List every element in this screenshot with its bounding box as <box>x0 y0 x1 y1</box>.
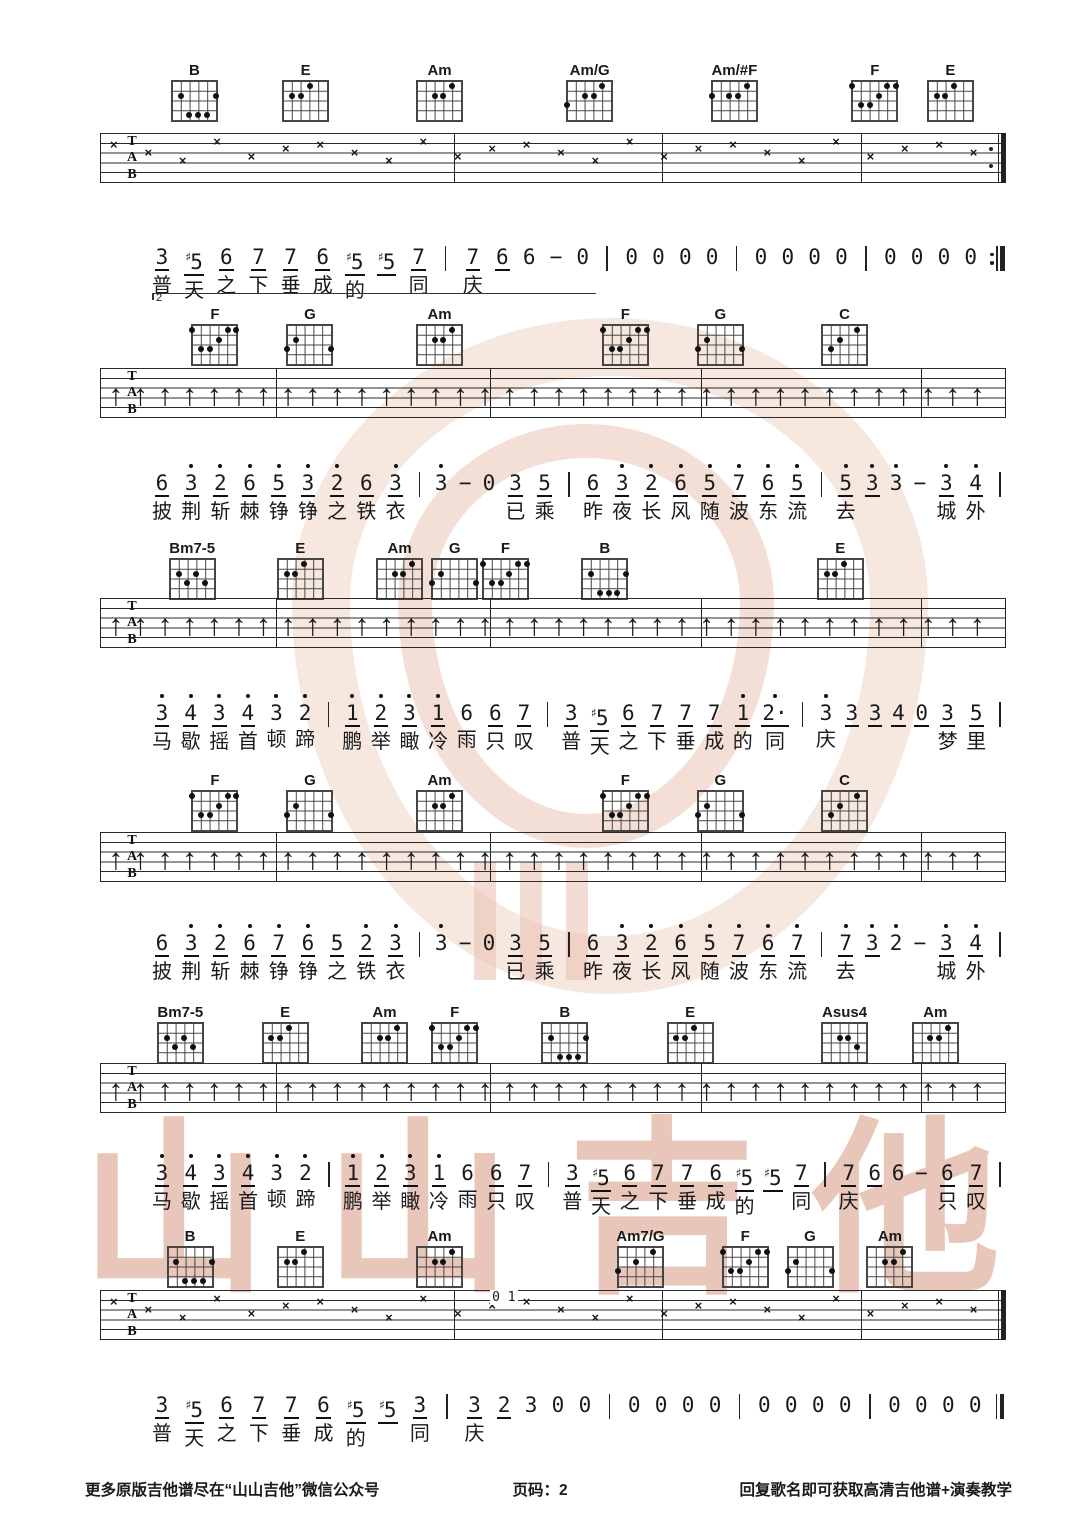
chord-finger-dot <box>328 346 334 352</box>
chord-grid <box>667 1022 714 1064</box>
strum-arrow: ↑ <box>453 606 468 646</box>
jianpu-note: 3 <box>939 922 954 957</box>
octave-dot <box>364 924 368 928</box>
chord-diagram: E <box>655 1004 725 1064</box>
chord-finger-dot <box>429 1025 435 1031</box>
jianpu-note: 2 <box>374 692 389 727</box>
jianpu-token: 1的 <box>733 692 753 754</box>
lyric-char: 棘 <box>240 960 260 984</box>
jianpu-token: 1鹏 <box>343 1152 363 1214</box>
jianpu-token <box>990 236 1005 271</box>
sharp-sign: ♯ <box>764 1166 769 1180</box>
chord-name: Am/G <box>555 62 625 79</box>
jianpu-token: ♯5 <box>763 1152 782 1192</box>
mute-x-mark: × <box>626 1292 634 1305</box>
jianpu-note: 6 <box>155 462 170 497</box>
strum-arrow: ↑ <box>699 1071 714 1111</box>
jianpu-note: 3 <box>212 692 227 727</box>
strum-arrow: ↑ <box>921 606 936 646</box>
jianpu-token: 7下 <box>648 1152 668 1214</box>
chord-finger-dot <box>695 346 701 352</box>
mute-x-mark: × <box>763 146 771 159</box>
lyric-char: 瞰 <box>399 730 419 754</box>
chord-grid <box>191 790 238 832</box>
jianpu-note: 3 <box>865 922 880 957</box>
strum-arrow: ↑ <box>527 376 542 416</box>
chord-finger-dot <box>202 580 208 586</box>
tab-staff: T A B××××××××××××××××××××××××××0 1 <box>100 1290 1006 1340</box>
octave-dot <box>844 924 848 928</box>
strum-arrow: ↑ <box>601 606 616 646</box>
jianpu-token: 6只 <box>486 1152 506 1214</box>
jianpu-token: 3马 <box>152 692 172 754</box>
strum-arrow: ↑ <box>133 376 148 416</box>
jianpu-token: 5随 <box>700 462 720 524</box>
jianpu-note: 0 <box>887 1384 902 1417</box>
octave-dot <box>248 924 252 928</box>
chord-grid <box>361 1022 408 1064</box>
jianpu-note: − <box>458 922 473 955</box>
chord-grid <box>482 558 529 600</box>
strum-arrow: ↑ <box>822 1071 837 1111</box>
tab-staff: T A B↑↑↑↑↑↑↑↑↑↑↑↑↑↑↑↑↑↑↑↑↑↑↑↑↑↑↑↑↑↑↑↑↑↑↑… <box>100 832 1006 882</box>
jianpu-note: 3 <box>615 922 630 957</box>
sharp-sign: ♯ <box>346 250 351 264</box>
jianpu-note: 0 <box>578 1384 593 1417</box>
octave-dot <box>436 694 440 698</box>
chord-name: B <box>570 540 640 557</box>
jianpu-note: 3 <box>565 1152 580 1187</box>
lyric-char: 天 <box>591 1195 611 1219</box>
chord-diagram: Am <box>405 1228 475 1288</box>
jianpu-note: 7 <box>271 922 286 957</box>
lyric-char: 东 <box>758 960 778 984</box>
strum-arrow: ↑ <box>404 840 419 880</box>
jianpu-note: ♯5 <box>590 692 609 732</box>
jianpu-note: 7 <box>251 236 266 271</box>
lyric-char: 铁 <box>356 960 376 984</box>
jianpu-note: 3 <box>508 462 523 497</box>
strum-arrow: ↑ <box>330 1071 345 1111</box>
strum-arrow: ↑ <box>896 606 911 646</box>
chord-finger-dot <box>728 1268 734 1274</box>
chord-grid <box>282 80 329 122</box>
strum-arrow: ↑ <box>157 376 172 416</box>
jianpu-token: 3顿 <box>266 692 286 752</box>
jianpu-note: 0 <box>705 236 720 269</box>
strum-arrow: ↑ <box>896 376 911 416</box>
jianpu-token: 0 <box>627 1384 642 1417</box>
jianpu-note: 0 <box>482 922 497 955</box>
strum-arrow: ↑ <box>847 606 862 646</box>
lyric-char: 昨 <box>583 500 603 524</box>
sharp-sign: ♯ <box>591 706 596 720</box>
jianpu-note: 0 <box>551 1384 566 1417</box>
jianpu-note: 2 <box>213 922 228 957</box>
jianpu-note: 3 <box>269 692 284 725</box>
jianpu-note: 0 <box>654 1384 669 1417</box>
strum-arrow: ↑ <box>797 1071 812 1111</box>
strum-arrow: ↑ <box>256 376 271 416</box>
jianpu-token: 3 <box>865 922 880 957</box>
jianpu-token <box>442 1384 452 1419</box>
jianpu-note: 3 <box>155 692 170 727</box>
chord-grid <box>602 790 649 832</box>
chord-name: F <box>470 540 540 557</box>
jianpu-note: 7 <box>732 922 747 957</box>
lyric-char: 长 <box>641 960 661 984</box>
jianpu-token: 5乘 <box>535 922 555 984</box>
jianpu-token: 3荆 <box>181 462 201 524</box>
measure-barline <box>276 832 277 882</box>
lyric-char: 衣 <box>386 500 406 524</box>
chord-finger-dot <box>489 580 495 586</box>
chord-finger-dot <box>682 1035 688 1041</box>
chord-diagram: C <box>810 306 880 366</box>
chord-finger-dot <box>575 1054 581 1060</box>
chord-name: Am <box>855 1228 925 1245</box>
strum-arrow: ↑ <box>305 840 320 880</box>
mute-x-mark: × <box>213 1292 221 1305</box>
octave-dot <box>394 464 398 468</box>
jianpu-barline <box>609 1394 611 1419</box>
jianpu-note: 0 <box>681 1384 696 1417</box>
lyric-char: 举 <box>372 1190 392 1214</box>
jianpu-token: − <box>913 462 928 495</box>
jianpu-note: 4 <box>183 1152 198 1187</box>
chord-finger-dot <box>400 571 406 577</box>
strum-arrow: ↑ <box>871 1071 886 1111</box>
strum-arrow: ↑ <box>231 606 246 646</box>
jianpu-note: 0 <box>784 1384 799 1417</box>
repeat-dots <box>990 253 994 265</box>
jianpu-token <box>995 1384 1005 1419</box>
jianpu-token: 2长 <box>641 922 661 984</box>
chord-finger-dot <box>464 1025 470 1031</box>
jianpu-note: 2 <box>359 922 374 957</box>
chord-finger-dot <box>432 337 438 343</box>
jianpu-note: 4 <box>241 1152 256 1187</box>
jianpu-token <box>602 236 612 271</box>
lyric-char: 瞰 <box>400 1190 420 1214</box>
chord-finger-dot <box>473 1025 479 1031</box>
octave-dot <box>620 464 624 468</box>
chord-finger-dot <box>293 803 299 809</box>
jianpu-token: 6 <box>891 1152 906 1185</box>
lyric-char: 鹏 <box>343 1190 363 1214</box>
lyric-char: 顿 <box>267 1188 287 1212</box>
jianpu-token: − <box>458 922 473 955</box>
jianpu-note: 2 <box>374 1152 389 1187</box>
jianpu-token: 1冷 <box>429 1152 449 1214</box>
end-barline <box>1005 832 1007 882</box>
octave-dot <box>439 464 443 468</box>
jianpu-note: 7 <box>411 236 426 271</box>
octave-dot <box>649 464 653 468</box>
jianpu-token: 2举 <box>371 692 391 754</box>
jianpu-token: 3普 <box>561 692 581 754</box>
lyric-char: 夜 <box>612 960 632 984</box>
octave-dot <box>844 464 848 468</box>
strum-arrow: ↑ <box>896 840 911 880</box>
strum-arrow: ↑ <box>945 376 960 416</box>
chord-finger-dot <box>891 1259 897 1265</box>
jianpu-note: 0 <box>968 1384 983 1417</box>
jianpu-final-bar <box>996 1394 1005 1419</box>
octave-dot <box>189 694 193 698</box>
jianpu-note: 4 <box>183 692 198 727</box>
lyric-char: 庆 <box>839 1190 859 1214</box>
jianpu-token: 7去 <box>836 922 856 984</box>
mute-x-mark: × <box>179 154 187 167</box>
strum-arrow: ↑ <box>108 606 123 646</box>
jianpu-note: 7 <box>794 1152 809 1187</box>
jianpu-token: 0 <box>941 1384 956 1417</box>
lyric-char: 东 <box>758 500 778 524</box>
jianpu-line: 6披3荆2斩6棘5铮3铮2之6铁3衣3−03已5乘6昨3夜2长6风5随7波6东5… <box>152 462 1005 524</box>
jianpu-barline <box>547 702 549 727</box>
jianpu-note: 4 <box>241 692 256 727</box>
jianpu-token: 5铮 <box>269 462 289 524</box>
jianpu-note: 0 <box>914 1384 929 1417</box>
jianpu-token: 6风 <box>671 462 691 524</box>
jianpu-note: 6 <box>708 1152 723 1187</box>
lyric-char: 鹏 <box>342 730 362 754</box>
jianpu-token <box>415 922 425 957</box>
mute-x-mark: × <box>695 142 703 155</box>
end-barline <box>1005 1063 1007 1113</box>
chord-finger-dot <box>588 571 594 577</box>
chord-grid <box>821 790 868 832</box>
chord-finger-dot <box>189 327 195 333</box>
jianpu-barline <box>802 702 804 727</box>
strum-arrow: ↑ <box>674 376 689 416</box>
lyric-char: 铮 <box>269 960 289 984</box>
lyric-char: 去 <box>836 960 856 984</box>
jianpu-note: 3 <box>155 236 170 271</box>
mute-x-mark: × <box>385 1311 393 1324</box>
lyric-char: 天 <box>590 735 610 759</box>
strum-arrow: ↑ <box>108 1071 123 1111</box>
lyric-char: 雨 <box>457 728 477 752</box>
chord-name: Bm7-5 <box>157 540 227 557</box>
lyric-char: 衣 <box>386 960 406 984</box>
jianpu-note: 0 <box>807 236 822 269</box>
jianpu-token: 6雨 <box>458 1152 478 1212</box>
jianpu-token <box>324 1152 334 1187</box>
jianpu-token: 4外 <box>966 462 986 524</box>
jianpu-line: 6披3荆2斩6棘7铮6铮5之2铁3衣3−03已5乘6昨3夜2长6风5随7波6东7… <box>152 922 1005 984</box>
lyric-char: 垂 <box>677 1190 697 1214</box>
measure-barline <box>276 1063 277 1113</box>
jianpu-note: 7 <box>651 1152 666 1187</box>
measure-barline <box>861 133 862 183</box>
chord-name: F <box>590 306 660 323</box>
jianpu-token: 7庆 <box>463 236 483 298</box>
jianpu-token: − <box>913 922 928 955</box>
strum-arrow: ↑ <box>354 606 369 646</box>
lyric-char: 雨 <box>458 1188 478 1212</box>
strum-arrow: ↑ <box>748 606 763 646</box>
chord-finger-dot <box>635 327 641 333</box>
lyric-char: 的 <box>346 1427 366 1451</box>
strum-arrow: ↑ <box>404 606 419 646</box>
chord-finger-dot <box>438 571 444 577</box>
jianpu-token: 0 <box>578 1384 593 1417</box>
strum-arrow: ↑ <box>157 840 172 880</box>
chord-name: Am <box>405 62 475 79</box>
strum-arrow: ↑ <box>133 606 148 646</box>
octave-dot <box>974 464 978 468</box>
lyric-char: 斩 <box>210 500 230 524</box>
chord-finger-dot <box>927 1035 933 1041</box>
chord-diagram: Am7/G <box>605 1228 675 1288</box>
octave-dot <box>766 924 770 928</box>
strum-arrow: ↑ <box>182 606 197 646</box>
jianpu-token: 6东 <box>758 922 778 984</box>
strum-arrow: ↑ <box>502 1071 517 1111</box>
lyric-char: 冷 <box>429 1190 449 1214</box>
jianpu-token: 2斩 <box>210 462 230 524</box>
jianpu-note: ♯5 <box>735 1152 754 1192</box>
strum-arrow: ↑ <box>773 1071 788 1111</box>
jianpu-note: 3 <box>212 1152 227 1187</box>
jianpu-note: − <box>913 922 928 955</box>
strum-arrow: ↑ <box>256 840 271 880</box>
mute-x-mark: × <box>523 1295 531 1308</box>
jianpu-token: 6铮 <box>298 922 318 984</box>
tab-staff: T A B↑↑↑↑↑↑↑↑↑↑↑↑↑↑↑↑↑↑↑↑↑↑↑↑↑↑↑↑↑↑↑↑↑↑↑… <box>100 598 1006 648</box>
bar-thin <box>996 246 998 271</box>
octave-dot <box>679 464 683 468</box>
chord-diagram: Am/G <box>555 62 625 122</box>
jianpu-token: 3 <box>845 692 860 727</box>
strum-arrow: ↑ <box>428 840 443 880</box>
strum-arrow: ↑ <box>453 376 468 416</box>
chord-finger-dot <box>193 571 199 577</box>
strum-arrow: ↑ <box>748 376 763 416</box>
jianpu-barline <box>824 1162 826 1187</box>
jianpu-note: 2 <box>298 1152 313 1185</box>
chord-name: E <box>655 1004 725 1021</box>
jianpu-token: 3 <box>434 922 449 955</box>
lyric-char: 下 <box>249 1422 269 1446</box>
jianpu-token <box>816 462 826 497</box>
strum-arrow: ↑ <box>428 606 443 646</box>
chord-name: E <box>271 62 341 79</box>
chord-grid <box>416 790 463 832</box>
tab-letters: T A B <box>125 1291 139 1340</box>
jianpu-token <box>861 236 871 271</box>
lyric-char: 首 <box>238 730 258 754</box>
jianpu-note: 3 <box>524 1384 539 1417</box>
strum-arrow: ↑ <box>871 840 886 880</box>
lyric-char: 流 <box>787 500 807 524</box>
strum-arrow: ↑ <box>674 606 689 646</box>
strum-arrow: ↑ <box>477 1071 492 1111</box>
chord-finger-dot <box>186 112 192 118</box>
chord-diagram: F <box>470 540 540 600</box>
lyric-char: 垂 <box>676 730 696 754</box>
jianpu-token: 3马 <box>152 1152 172 1214</box>
octave-dot <box>160 694 164 698</box>
jianpu-token: 3普 <box>152 1384 172 1446</box>
chord-finger-dot <box>755 1249 761 1255</box>
chord-finger-dot <box>178 93 184 99</box>
chord-finger-dot <box>456 1035 462 1041</box>
strum-arrow: ↑ <box>699 376 714 416</box>
jianpu-note: 7 <box>707 692 722 727</box>
chord-finger-dot <box>432 93 438 99</box>
jianpu-barline <box>328 702 330 727</box>
sharp-sign: ♯ <box>378 250 383 264</box>
jianpu-token: 6披 <box>152 922 172 984</box>
tab-staff: T A B↑↑↑↑↑↑↑↑↑↑↑↑↑↑↑↑↑↑↑↑↑↑↑↑↑↑↑↑↑↑↑↑↑↑↑… <box>100 1063 1006 1113</box>
jianpu-note: 0 <box>937 236 952 269</box>
jianpu-token <box>441 236 451 271</box>
strum-arrow: ↑ <box>207 376 222 416</box>
jianpu-note: 0 <box>780 236 795 269</box>
mute-x-mark: × <box>420 135 428 148</box>
chord-name: E <box>265 540 335 557</box>
strum-arrow: ↑ <box>601 1071 616 1111</box>
chord-finger-dot <box>876 93 882 99</box>
mute-x-mark: × <box>660 1307 668 1320</box>
strum-arrow: ↑ <box>551 606 566 646</box>
jianpu-note: ♯5 <box>345 236 364 276</box>
jianpu-barline <box>419 472 421 497</box>
chord-name: G <box>275 306 345 323</box>
jianpu-note: 5 <box>838 462 853 497</box>
jianpu-token: 6之 <box>620 1152 640 1214</box>
strum-arrow: ↑ <box>133 1071 148 1111</box>
chord-diagram: G <box>685 306 755 366</box>
footer-page-number: 页码：2 <box>512 1478 567 1500</box>
jianpu-note: 3 <box>845 692 860 727</box>
measure-barline <box>861 1290 862 1340</box>
strum-arrow: ↑ <box>281 376 296 416</box>
jianpu-token <box>820 1152 830 1187</box>
jianpu-note: 2 <box>330 462 345 497</box>
chord-finger-dot <box>449 1249 455 1255</box>
octave-dot <box>218 924 222 928</box>
chord-finger-dot <box>289 93 295 99</box>
chord-finger-dot <box>673 1035 679 1041</box>
jianpu-note: 3 <box>939 462 954 497</box>
strum-arrow: ↑ <box>650 1071 665 1111</box>
lyric-char: 摇 <box>209 730 229 754</box>
chord-finger-dot <box>284 346 290 352</box>
strum-arrow: ↑ <box>945 1071 960 1111</box>
chord-diagram: F <box>840 62 910 122</box>
chord-finger-dot <box>832 571 838 577</box>
mute-x-mark: × <box>557 146 565 159</box>
lyric-char: 波 <box>729 500 749 524</box>
strum-arrow: ↑ <box>625 606 640 646</box>
octave-dot <box>741 694 745 698</box>
strum-arrow: ↑ <box>527 840 542 880</box>
lyric-char: 首 <box>238 1190 258 1214</box>
bar-thin <box>996 1394 998 1419</box>
jianpu-token: − <box>549 236 564 269</box>
chord-finger-dot <box>739 812 745 818</box>
lyric-char: 冷 <box>428 730 448 754</box>
jianpu-note: 6 <box>586 462 601 497</box>
mute-x-mark: × <box>420 1292 428 1305</box>
octave-dot <box>303 694 307 698</box>
end-barline-thin <box>998 133 1000 183</box>
lyric-char: 波 <box>729 960 749 984</box>
